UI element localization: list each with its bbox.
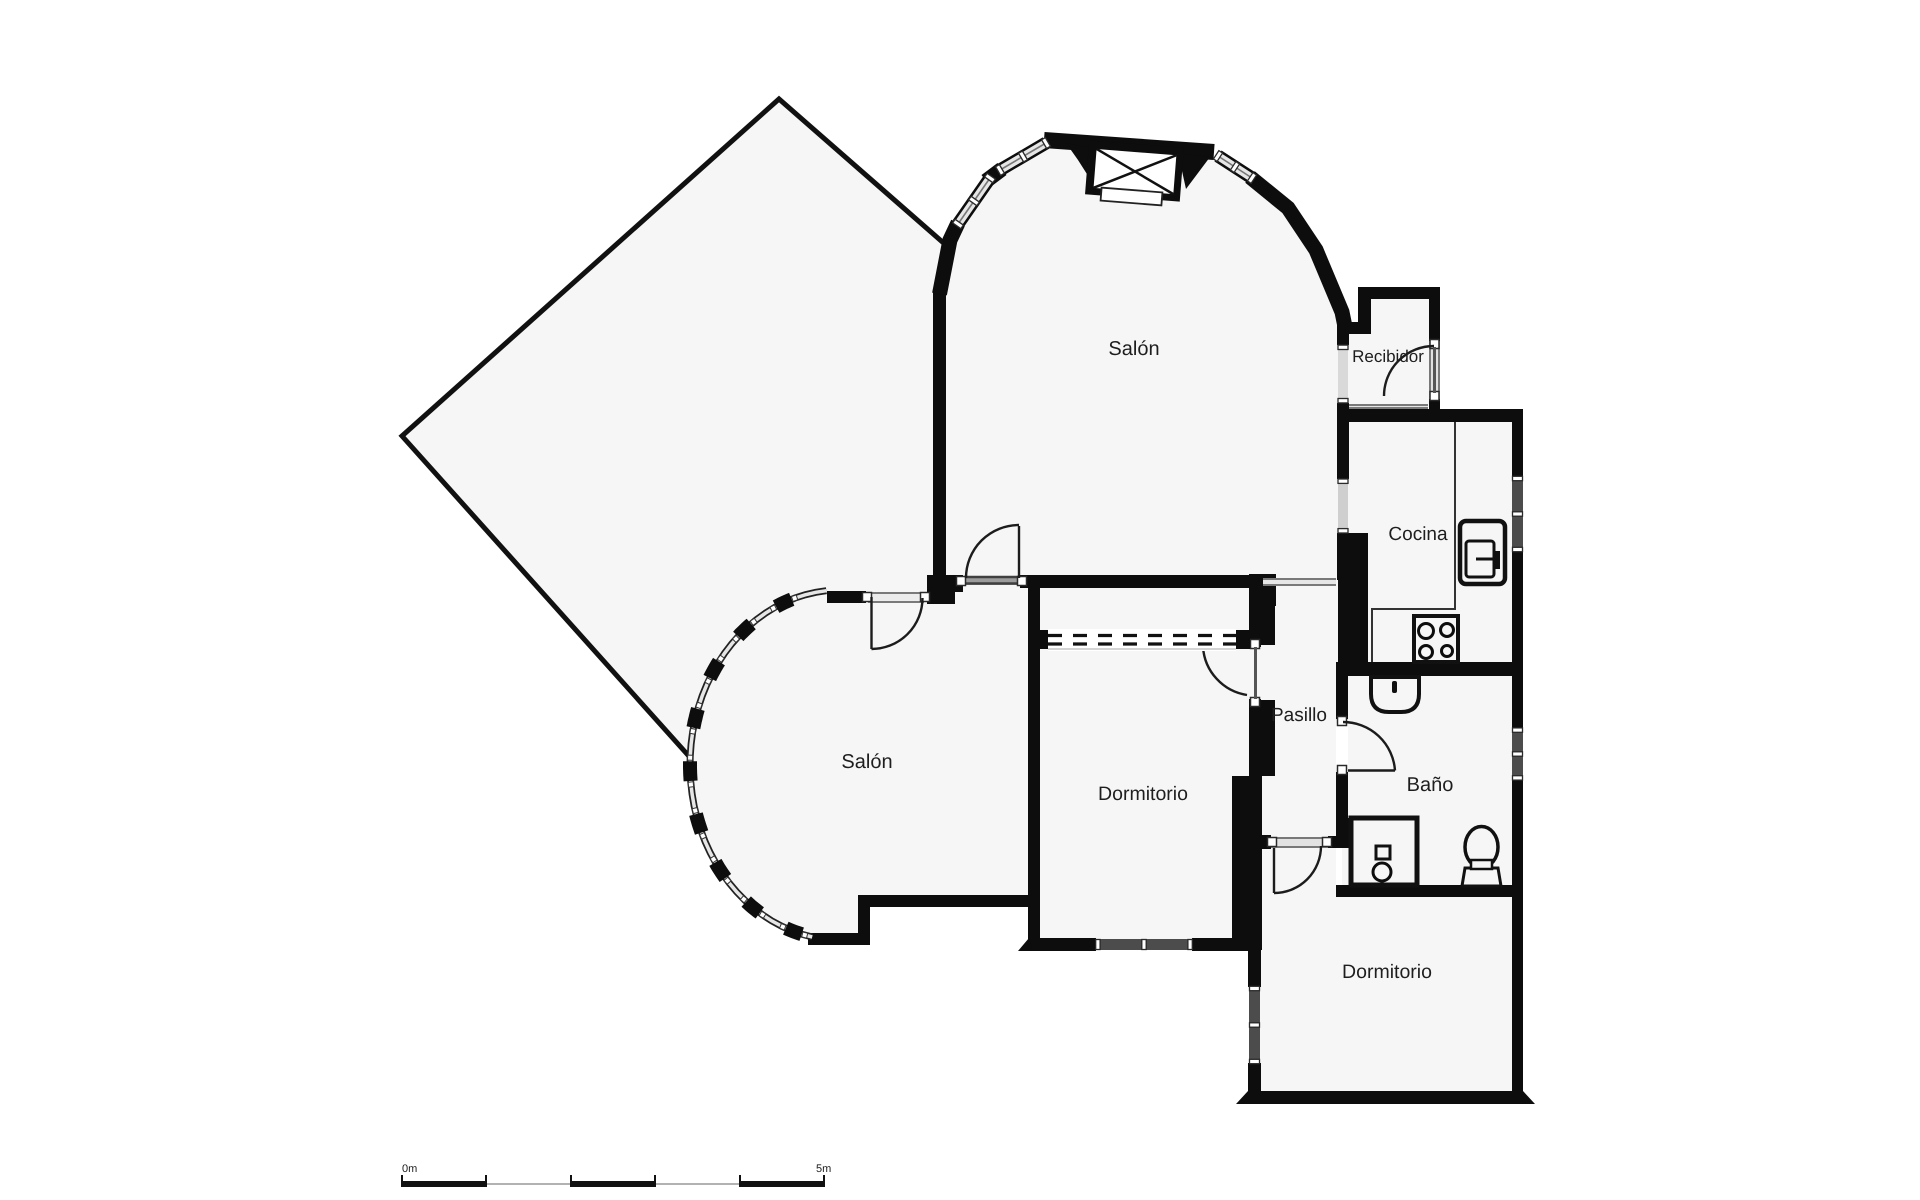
svg-text:Salón: Salón	[841, 751, 892, 773]
svg-text:5m: 5m	[816, 1163, 831, 1175]
svg-text:Dormitorio: Dormitorio	[1098, 783, 1188, 805]
svg-text:Cocina: Cocina	[1388, 524, 1448, 545]
svg-text:0m: 0m	[402, 1163, 417, 1175]
svg-text:Pasillo: Pasillo	[1271, 705, 1327, 726]
svg-text:Recibidor: Recibidor	[1352, 347, 1424, 366]
svg-text:Dormitorio: Dormitorio	[1342, 961, 1432, 983]
svg-text:Salón: Salón	[1108, 338, 1159, 360]
svg-text:Baño: Baño	[1407, 774, 1454, 796]
